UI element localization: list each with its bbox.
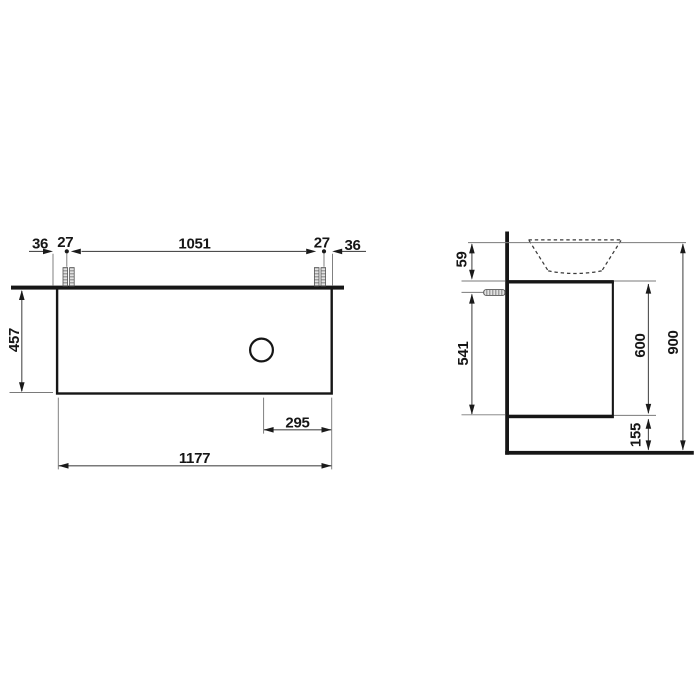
drawing-canvas: 36 27 1051 27 36 457 295 1 [0, 0, 700, 700]
dim-total-width: 1177 [58, 398, 331, 470]
cabinet-front-outline [57, 288, 332, 394]
dim-label-27-left: 27 [57, 234, 73, 251]
dim-label-155: 155 [628, 423, 645, 447]
dim-label-295: 295 [285, 414, 309, 431]
dim-label-27-right: 27 [314, 235, 330, 252]
dim-front-height: 457 [6, 290, 53, 393]
dim-total-height: 900 [665, 243, 686, 450]
dim-floor-clearance: 155 [628, 419, 652, 451]
dim-label-1051: 1051 [178, 236, 210, 253]
dim-drain-offset: 295 [264, 398, 332, 470]
dim-body-height: 600 [632, 284, 651, 414]
wall-anchor-bolt [484, 290, 506, 296]
dim-label-541: 541 [455, 341, 472, 365]
side-view: 59 541 600 155 900 [454, 232, 694, 455]
dim-label-900: 900 [665, 330, 682, 354]
washbasin-outline-dashed [529, 240, 622, 274]
mounting-dowels-right [314, 268, 325, 286]
front-view: 36 27 1051 27 36 457 295 1 [6, 234, 366, 469]
dim-label-36-left: 36 [32, 236, 48, 253]
dim-label-36-right: 36 [344, 237, 360, 254]
floor-line [505, 451, 694, 455]
dim-label-600: 600 [632, 333, 649, 357]
drain-hole [250, 339, 273, 362]
dim-label-59: 59 [454, 251, 471, 267]
dim-label-1177: 1177 [179, 450, 210, 467]
dim-label-457: 457 [6, 328, 23, 352]
dim-basin-gap: 59 [454, 243, 475, 279]
technical-drawing-vanity-unit: 36 27 1051 27 36 457 295 1 [0, 0, 700, 700]
mounting-dowels-left [63, 268, 74, 286]
wall-line [505, 232, 509, 455]
cabinet-side-profile [509, 280, 614, 418]
dim-anchor-to-bottom: 541 [455, 294, 475, 415]
washtop-slab [11, 286, 344, 290]
